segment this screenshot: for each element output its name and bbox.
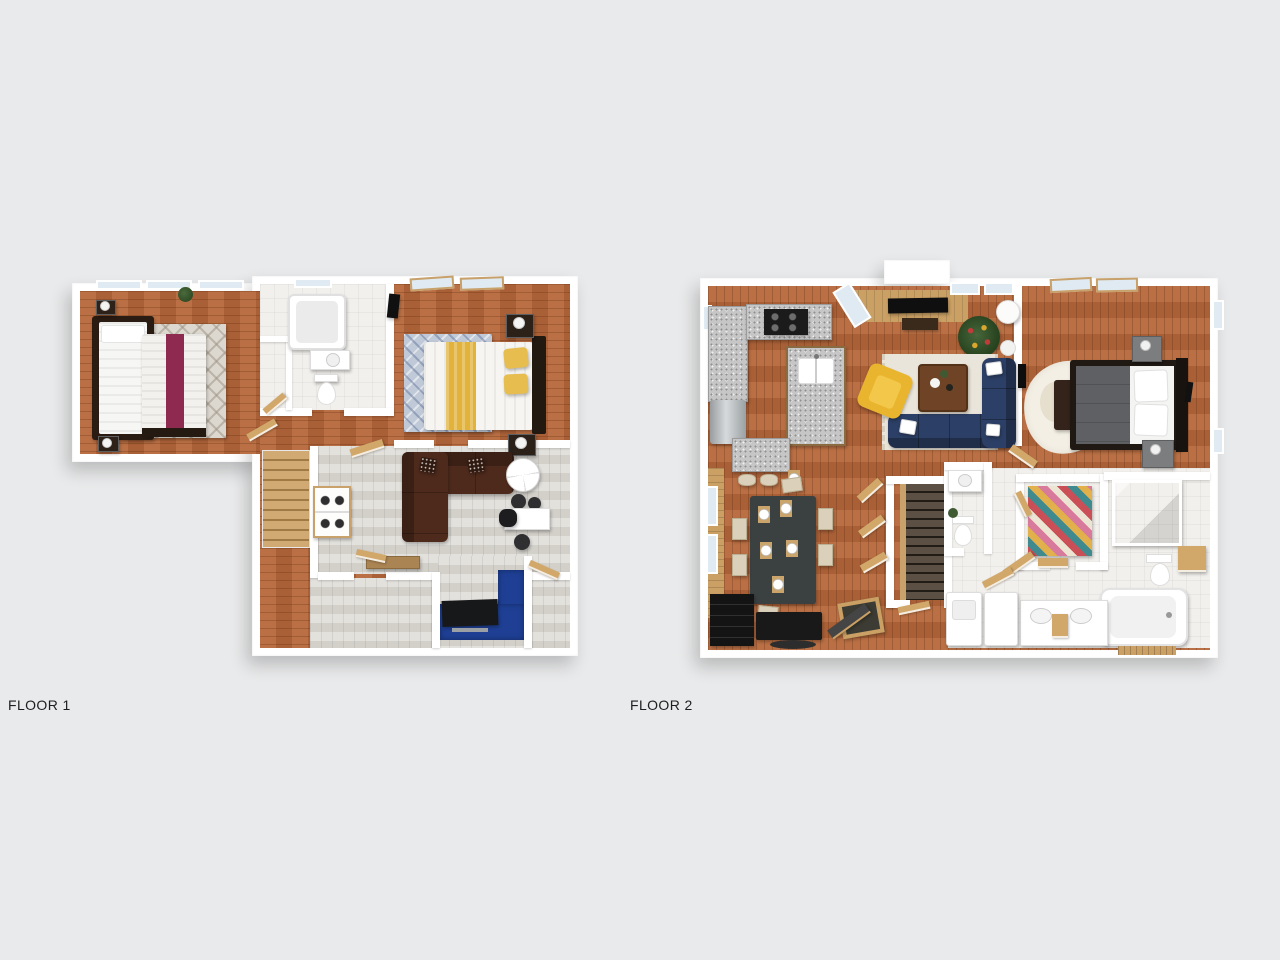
table-lamp <box>513 317 525 329</box>
bath-cabinet <box>1178 546 1206 572</box>
duvet-gray <box>1076 366 1130 444</box>
closet-shelf <box>1038 558 1068 568</box>
potted-plant <box>948 508 958 518</box>
pillow <box>1133 403 1168 436</box>
bath-mat <box>1118 646 1176 655</box>
doormat <box>770 640 816 649</box>
dryer <box>984 592 1018 646</box>
stool <box>514 534 530 550</box>
kitchen-counter-left <box>708 306 748 402</box>
window <box>1050 277 1093 293</box>
washer-lid <box>952 600 976 620</box>
table-decor <box>930 378 940 388</box>
place-setting <box>786 540 798 557</box>
floor-lamp-shade <box>996 300 1020 324</box>
throw-pillow <box>986 424 1001 437</box>
stairs-floor1 <box>262 450 310 548</box>
bar-stool <box>760 474 778 486</box>
window <box>198 280 244 290</box>
wall <box>886 476 894 608</box>
toilet-tank <box>1146 554 1172 563</box>
dining-chair <box>732 518 747 540</box>
faucet <box>814 354 819 359</box>
floor1-label: FLOOR 1 <box>8 697 71 713</box>
toilet-bowl <box>317 382 336 405</box>
window <box>294 278 332 288</box>
table-lamp <box>1140 340 1151 351</box>
closet1-floor <box>532 578 570 648</box>
table-lamp <box>515 437 527 449</box>
table-lamp <box>102 438 112 448</box>
window <box>706 534 718 574</box>
throw-pillow <box>899 419 917 436</box>
wall <box>344 408 394 416</box>
bar-stool <box>738 474 756 486</box>
sink <box>326 353 340 367</box>
place-setting <box>758 506 770 523</box>
wall <box>984 462 992 554</box>
toilet-tank <box>314 374 338 382</box>
sink <box>1030 608 1052 624</box>
table-lamp <box>1150 444 1161 455</box>
shower <box>1112 480 1182 546</box>
tv <box>888 297 948 313</box>
bed-yellow-blanket <box>446 342 476 430</box>
throw-pillow <box>467 457 485 473</box>
window <box>96 280 142 290</box>
wall <box>260 336 290 342</box>
floor2-plan <box>640 0 1280 960</box>
christmas-tree <box>958 316 1000 358</box>
stove <box>764 309 808 335</box>
place-setting <box>780 500 792 517</box>
wall <box>1104 472 1210 480</box>
sideboard <box>756 612 822 640</box>
table-lamp <box>100 301 110 311</box>
kitchen-sink <box>798 358 834 384</box>
window <box>1096 278 1138 293</box>
scene: { "title_labels": { "floor1": "FLOOR 1",… <box>0 0 1280 960</box>
dining-chair <box>818 544 833 566</box>
wall <box>886 476 952 484</box>
window <box>706 486 718 526</box>
window <box>460 276 504 291</box>
wall <box>394 440 434 448</box>
floor2-bay-bump <box>884 260 950 284</box>
wall <box>524 556 532 648</box>
wall <box>318 572 354 580</box>
window <box>984 282 1014 295</box>
bed-pillow <box>101 325 145 343</box>
wall <box>1076 562 1108 570</box>
stair-railing <box>900 484 906 600</box>
wall <box>1016 474 1108 482</box>
drain <box>1166 612 1172 618</box>
window <box>1212 428 1224 454</box>
harlequin-rug <box>1028 486 1092 556</box>
place-setting <box>772 576 784 593</box>
foosball-table <box>313 486 351 538</box>
toilet-bowl <box>954 524 972 546</box>
desk-chair <box>499 509 517 527</box>
potted-plant <box>178 287 193 302</box>
dining-chair <box>732 554 747 576</box>
bedroom-tv <box>1018 364 1026 388</box>
dining-chair <box>781 477 803 494</box>
bed-runner <box>166 334 184 436</box>
wall <box>386 572 438 580</box>
black-cabinet <box>710 594 754 646</box>
media-console <box>902 318 938 330</box>
stool <box>511 494 526 509</box>
headboard <box>1176 358 1188 452</box>
sink <box>958 474 972 487</box>
floor1-plan <box>0 0 640 960</box>
throw-pillow <box>419 457 437 473</box>
sink <box>1070 608 1092 624</box>
table-plant <box>940 370 948 378</box>
bathtub-basin <box>296 301 338 343</box>
toilet-bowl <box>1150 563 1170 586</box>
pillow <box>1133 369 1168 402</box>
breakfast-island <box>732 438 790 472</box>
stairs-floor2 <box>906 484 944 600</box>
wall <box>944 548 964 556</box>
pillow-yellow <box>503 347 529 369</box>
tv-desk <box>442 599 499 627</box>
wall <box>432 572 440 648</box>
floor-lamp-base <box>1000 340 1016 356</box>
bed-footboard <box>142 428 206 437</box>
wall <box>1100 474 1108 570</box>
table-decor <box>946 384 953 391</box>
window <box>950 282 980 295</box>
vanity-tray <box>1052 614 1068 638</box>
dining-chair <box>818 508 833 530</box>
storage-floor <box>310 578 432 648</box>
place-setting <box>760 542 772 559</box>
keyboard <box>452 628 488 632</box>
floor2-label: FLOOR 2 <box>630 697 693 713</box>
pillow-yellow <box>503 373 528 394</box>
throw-pillow <box>985 361 1003 376</box>
window <box>1212 300 1224 330</box>
headboard <box>532 336 546 434</box>
round-table <box>506 458 540 492</box>
